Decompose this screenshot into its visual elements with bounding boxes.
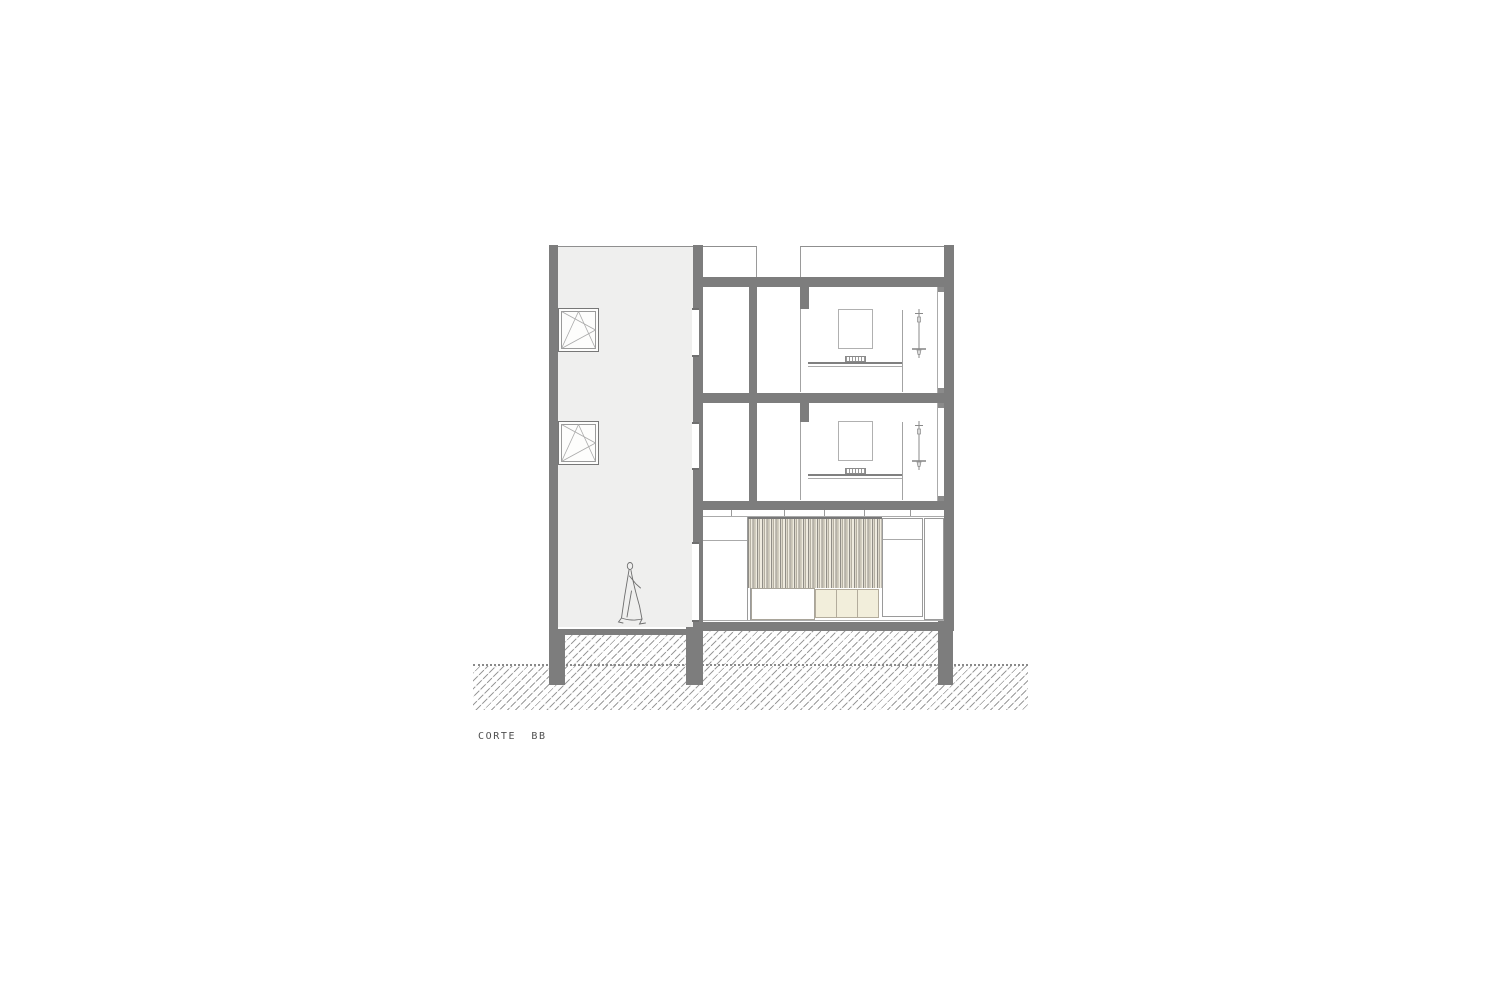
sheet-label: CORTE BB [478,731,547,742]
transom-mullion [784,510,785,516]
transom-mullion [864,510,865,516]
third-floor-desk-grille [845,356,866,362]
second-floor-wall-picture [838,421,873,461]
window-frame-cap [938,287,944,292]
second-floor-partition-wall [749,403,757,501]
second-floor-desk-surface [808,474,903,476]
third-floor-partition-wall [749,287,757,393]
second-floor-door-leaf [800,422,801,500]
second-floor-slab [703,501,954,510]
ground-floor-courtyard-window-marker [692,542,699,622]
foundation-pier-left [549,633,565,685]
window-frame-cap [938,496,944,501]
transom-mullion [731,510,732,516]
second-floor-door-header [800,403,809,422]
window-frame-cap [938,388,944,393]
second-floor-desk-grille [845,468,866,474]
third-floor-desk-edge [808,366,903,367]
second-floor-shower-partition [902,422,903,500]
transom-band [703,510,944,517]
third-floor-door-header [800,287,809,309]
white-counter-cabinet [751,588,815,620]
second-floor-shower-fixture-symbol [909,421,929,471]
transom-mullion [910,510,911,516]
side-unit [924,518,944,620]
third-floor-door-leaf [800,309,801,392]
second-floor-facade-window-strip [937,403,944,501]
striped-curtain [748,517,882,588]
ground-floor-slab [703,622,954,631]
third-floor-facade-window-strip [937,287,944,393]
ground-floor-line [703,620,944,621]
earth-hatch-under-building [703,631,938,666]
earth-hatch-under-tower [565,635,686,666]
cream-cabinet-3 [857,589,879,618]
second-floor-courtyard-window-marker [692,422,699,470]
third-floor-shower-fixture-symbol [909,309,929,359]
parapet-left [703,246,757,277]
window-frame-cap [938,403,944,408]
third-floor-desk-surface [808,362,903,364]
cream-cabinet-2 [836,589,858,618]
third-floor-slab [703,393,954,403]
tall-unit [882,518,923,617]
third-floor-courtyard-window-marker [692,308,699,357]
tall-unit-shelf-line [883,539,922,540]
ground-floor-door-head-line [703,540,747,541]
section-drawing-canvas: CORTE BB [0,0,1500,1000]
tilt-turn-window-symbol-lower [558,421,599,465]
building-right-wall [944,245,954,631]
third-floor-shower-partition [902,310,903,392]
transom-mullion [824,510,825,516]
tower-ground-slab [549,629,703,635]
roof-slab [703,277,954,287]
cream-cabinet-1 [815,589,837,618]
tilt-turn-window-symbol-upper [558,308,599,352]
walking-person-figure [616,561,652,627]
parapet-right [800,246,944,277]
second-floor-desk-edge [808,478,903,479]
tower-left-wall [549,245,558,635]
third-floor-wall-picture [838,309,873,349]
